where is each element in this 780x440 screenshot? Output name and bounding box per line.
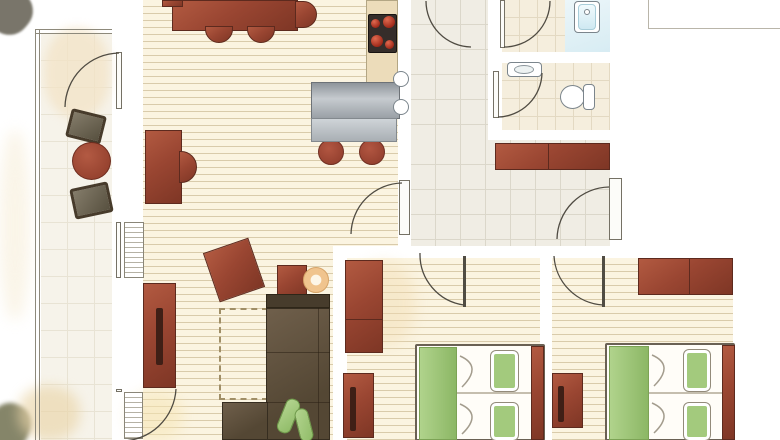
living-terrace-door2-arc [121,389,176,440]
bedroom1-door-arc [420,253,464,305]
vestibule-door-arc [426,1,471,47]
bathroom-door-arc [504,1,550,47]
wc-door-arc [498,73,542,117]
door-swings-overlay [0,0,780,440]
floor-plan [0,0,780,440]
bedroom2-door-arc [554,256,603,305]
bed1-duvet-fold-1 [460,356,472,387]
living-hall-door-arc [351,183,402,234]
bed1-duvet-fold-2 [460,404,472,434]
terrace-door-arc [65,53,119,107]
bed2-duvet-fold-2 [652,403,664,433]
entry-door-arc [557,187,609,239]
bed2-duvet-fold-1 [652,355,664,386]
